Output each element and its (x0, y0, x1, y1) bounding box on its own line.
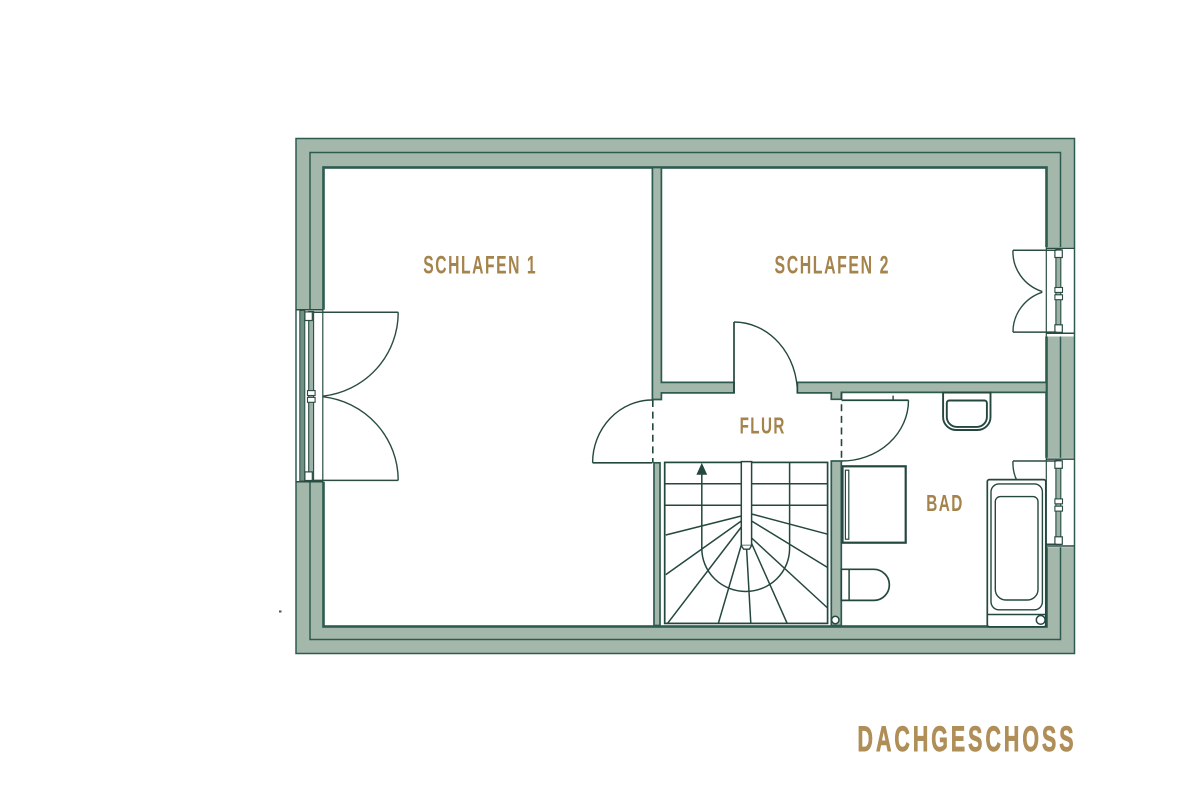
svg-text:BAD: BAD (926, 490, 964, 516)
svg-text:SCHLAFEN 1: SCHLAFEN 1 (423, 252, 537, 280)
svg-text:FLUR: FLUR (740, 413, 786, 439)
svg-text:DACHGESCHOSS: DACHGESCHOSS (858, 720, 1077, 759)
svg-text:SCHLAFEN 2: SCHLAFEN 2 (775, 251, 891, 279)
